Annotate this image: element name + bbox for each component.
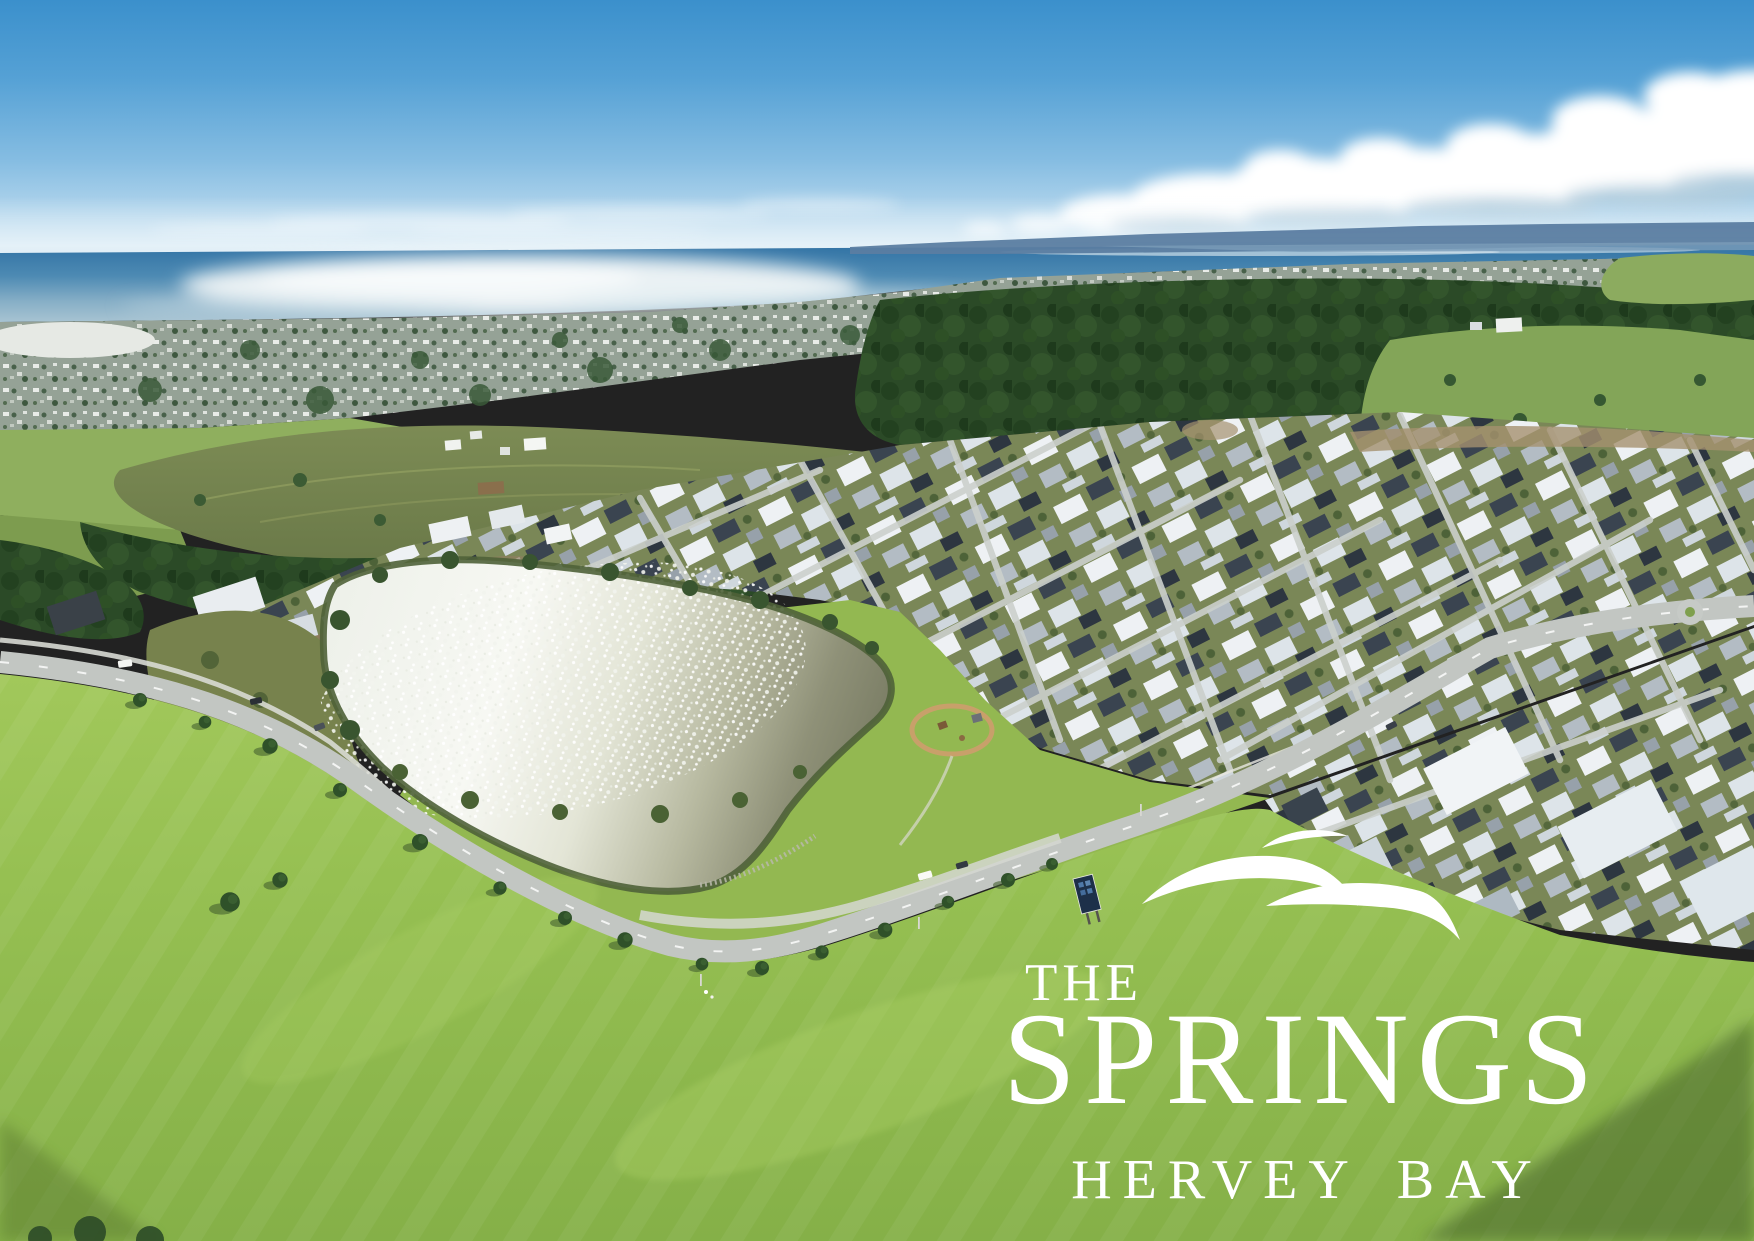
white-hill-building (1496, 317, 1523, 332)
upper-clearing (1601, 253, 1754, 304)
aerial-photo-art (0, 0, 1754, 1241)
aerial-photo: THE SPRINGS HERVEY BAY (0, 0, 1754, 1241)
